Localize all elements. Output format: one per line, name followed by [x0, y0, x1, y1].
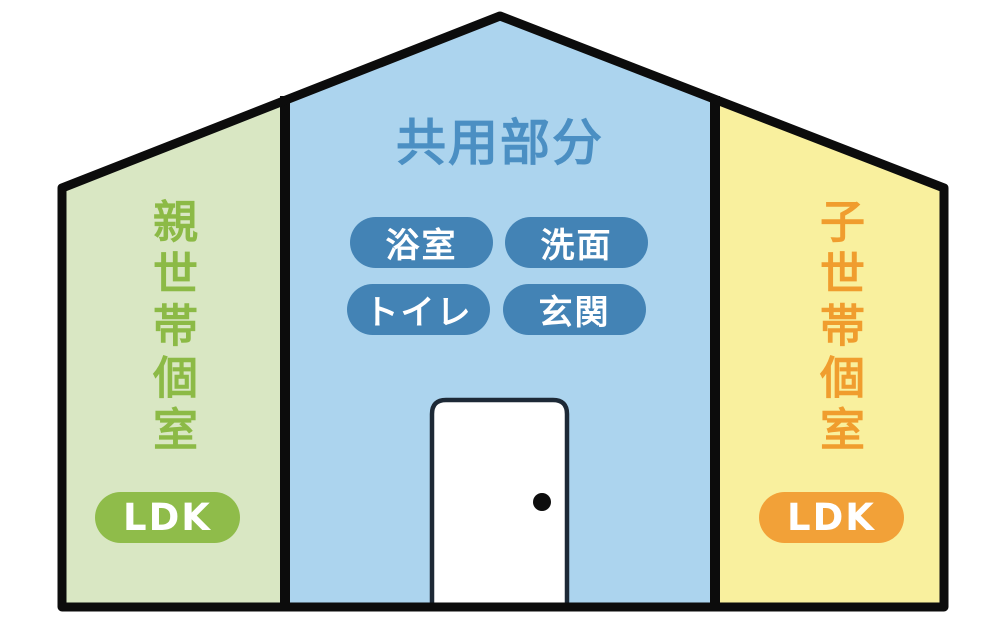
- child-unit-label: 子世帯個室: [797, 198, 861, 478]
- child-unit-ldk-badge: LDK: [759, 492, 904, 543]
- parent-unit-ldk-badge: LDK: [95, 492, 240, 543]
- room-badge-washroom: 洗面: [505, 217, 648, 268]
- parent-unit-label: 親世帯個室: [130, 198, 194, 478]
- shared-area-title: 共用部分: [330, 116, 670, 171]
- room-badge-bathroom: 浴室: [350, 217, 493, 268]
- doorknob-icon: [533, 493, 551, 511]
- two-household-house-diagram: 共用部分 浴室 洗面 トイレ 玄関 親世帯個室 LDK 子世帯個室 LDK: [0, 0, 1000, 627]
- room-badge-toilet: トイレ: [347, 284, 490, 335]
- room-badge-entrance: 玄関: [503, 284, 646, 335]
